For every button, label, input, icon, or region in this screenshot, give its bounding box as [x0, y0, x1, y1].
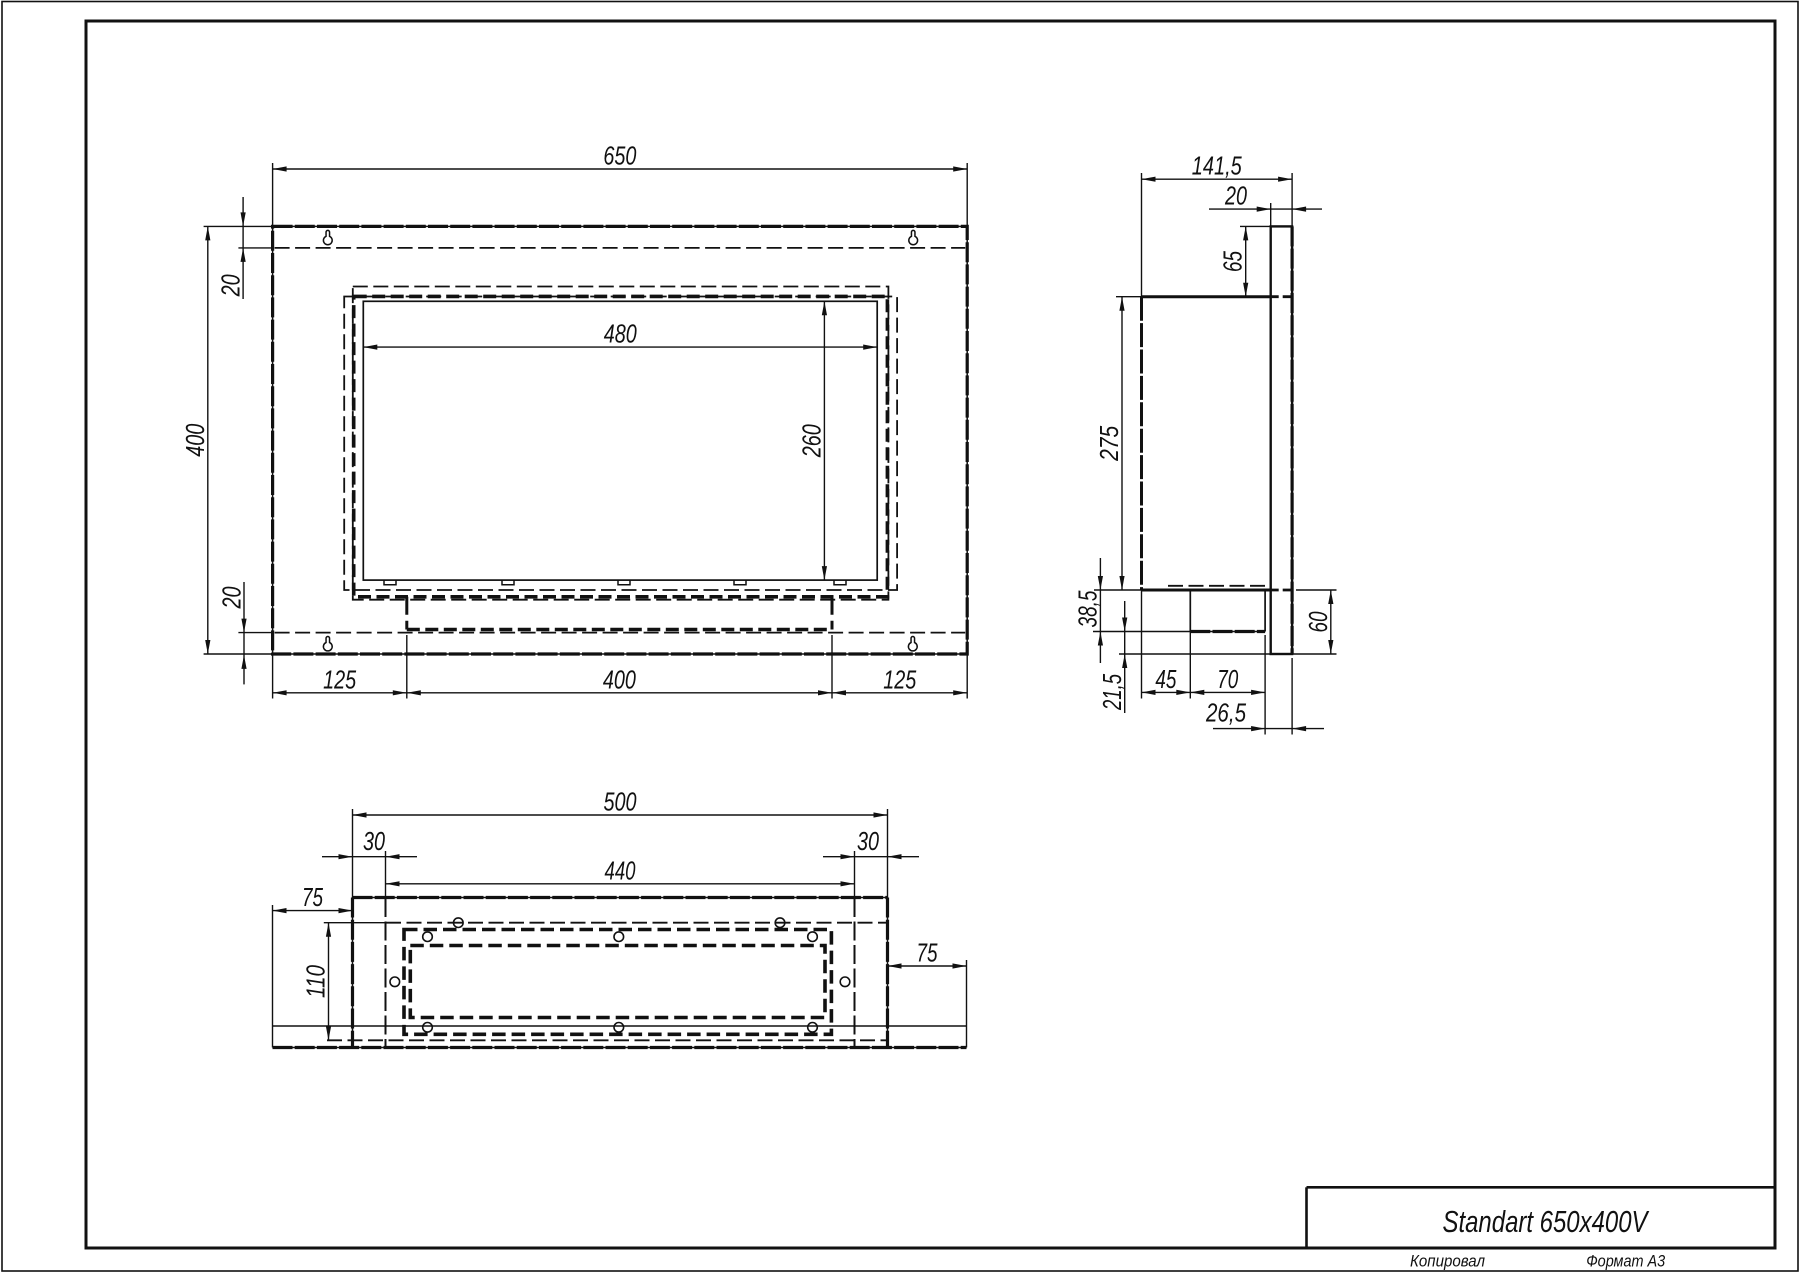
svg-text:500: 500: [604, 787, 637, 817]
svg-text:Standart 650x400V: Standart 650x400V: [1443, 1204, 1651, 1239]
svg-text:21,5: 21,5: [1097, 674, 1127, 711]
svg-text:75: 75: [917, 938, 938, 968]
svg-text:30: 30: [857, 826, 879, 856]
svg-text:75: 75: [302, 882, 323, 912]
svg-text:400: 400: [603, 664, 636, 694]
svg-text:70: 70: [1217, 664, 1238, 694]
svg-text:26,5: 26,5: [1205, 698, 1246, 728]
svg-text:20: 20: [1224, 181, 1247, 211]
svg-text:20: 20: [216, 274, 246, 297]
svg-text:275: 275: [1094, 425, 1124, 461]
svg-text:440: 440: [605, 855, 636, 885]
svg-text:141,5: 141,5: [1192, 151, 1242, 181]
svg-text:Формат А3: Формат А3: [1586, 1252, 1665, 1271]
svg-text:400: 400: [180, 423, 210, 456]
svg-text:125: 125: [323, 664, 356, 694]
svg-text:60: 60: [1303, 611, 1333, 632]
svg-text:65: 65: [1218, 251, 1248, 272]
svg-text:125: 125: [883, 664, 916, 694]
svg-text:260: 260: [796, 424, 826, 458]
svg-text:20: 20: [217, 586, 247, 609]
svg-text:30: 30: [363, 826, 385, 856]
svg-text:110: 110: [301, 965, 331, 998]
svg-text:38,5: 38,5: [1073, 590, 1103, 627]
svg-text:45: 45: [1155, 664, 1176, 694]
svg-text:480: 480: [604, 319, 637, 349]
svg-text:650: 650: [603, 141, 636, 171]
svg-text:Копировал: Копировал: [1410, 1252, 1485, 1271]
